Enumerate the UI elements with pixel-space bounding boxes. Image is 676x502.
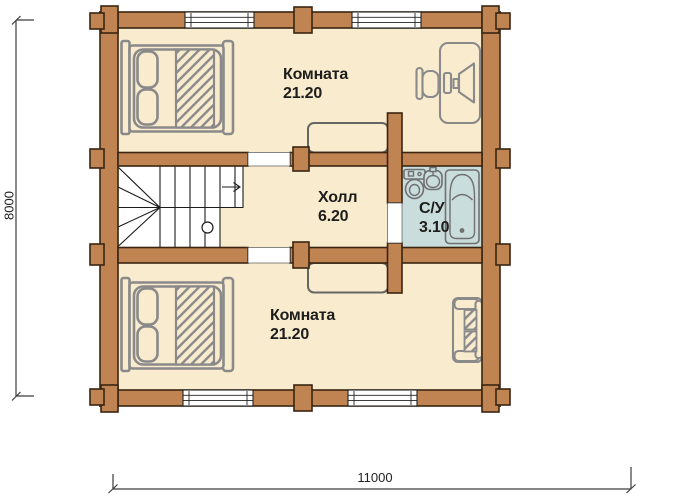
sofa-cushion	[465, 310, 477, 330]
dimension-height-label: 8000	[2, 191, 17, 221]
door-opening	[248, 248, 290, 264]
room-name: С/У	[419, 199, 449, 218]
door-opening	[248, 153, 290, 167]
keyboard	[444, 73, 451, 93]
computer-desk-icon	[440, 43, 480, 123]
blanket	[176, 50, 214, 128]
room-area: 3.10	[419, 218, 449, 237]
double-bed-icon	[122, 41, 234, 134]
stair-newel-post	[202, 222, 213, 233]
monitor-stand	[454, 79, 459, 88]
pillow	[138, 327, 158, 362]
room-area: 6.20	[318, 207, 357, 226]
room-name: Холл	[318, 188, 357, 207]
pillow	[138, 52, 158, 88]
dimension-width-label: 11000	[353, 470, 397, 485]
wardrobe-icon	[308, 123, 388, 153]
sofa-icon	[453, 298, 482, 362]
room-name: Комната	[283, 65, 348, 84]
room-label-bathroom: С/У 3.10	[419, 199, 449, 237]
room-area: 21.20	[283, 84, 348, 103]
sink-icon	[424, 168, 442, 190]
room-label-top: Комната 21.20	[283, 65, 348, 103]
blanket	[176, 287, 214, 365]
room-label-bottom: Комната 21.20	[270, 306, 335, 344]
bathtub-icon	[446, 170, 480, 244]
sofa-cushion	[465, 332, 477, 352]
pillow	[138, 289, 158, 325]
window	[352, 12, 421, 28]
window	[183, 390, 253, 406]
window	[348, 390, 417, 406]
window	[185, 12, 254, 28]
office-chair-icon	[417, 68, 439, 99]
pillow	[138, 90, 158, 125]
bathtub-drain	[460, 228, 465, 233]
room-label-hall: Холл 6.20	[318, 188, 357, 226]
door-opening	[388, 203, 403, 243]
double-bed-icon	[122, 278, 234, 371]
floor-plan: Комната 21.20 Холл 6.20 С/У 3.10 Комната…	[0, 0, 676, 502]
room-name: Комната	[270, 306, 335, 325]
toilet-icon	[404, 170, 425, 199]
room-area: 21.20	[270, 325, 335, 344]
wardrobe-icon	[308, 263, 388, 293]
